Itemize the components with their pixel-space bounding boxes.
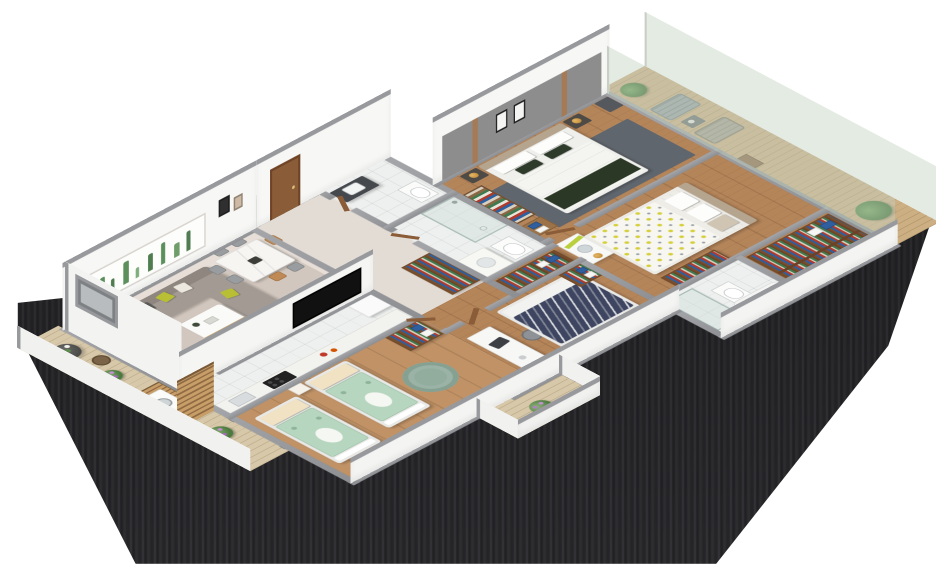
floor-plan-stage [0, 0, 936, 564]
framed-art [234, 193, 243, 211]
framed-art [219, 195, 230, 218]
laptop [488, 337, 511, 350]
